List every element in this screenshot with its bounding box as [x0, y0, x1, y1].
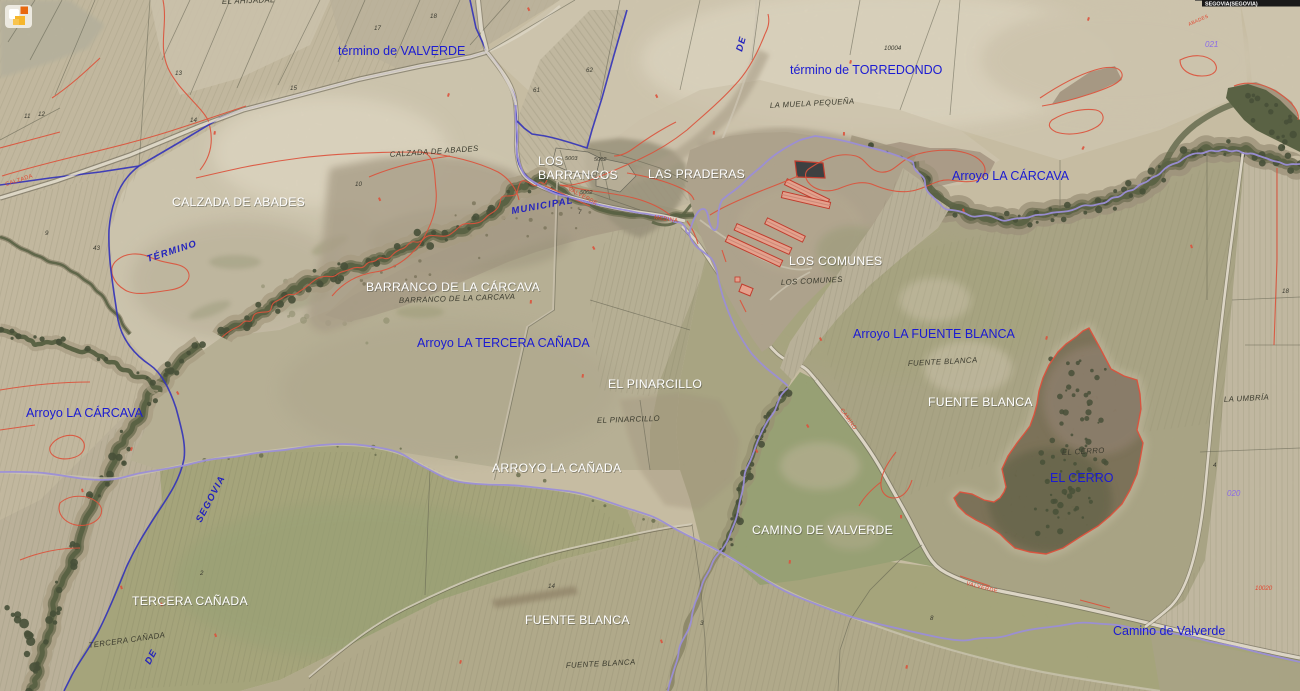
svg-text:62: 62 [586, 67, 593, 74]
svg-text:CAMINO DE VALVERDE: CAMINO DE VALVERDE [752, 523, 893, 537]
svg-text:10: 10 [355, 181, 362, 188]
svg-text:14: 14 [190, 117, 197, 124]
svg-text:15: 15 [290, 85, 297, 92]
svg-text:10004: 10004 [884, 45, 902, 52]
svg-text:43: 43 [93, 245, 100, 252]
svg-text:3: 3 [700, 620, 704, 627]
svg-text:13: 13 [175, 70, 182, 77]
svg-text:10020: 10020 [1255, 585, 1273, 592]
svg-text:EL PINARCILLO: EL PINARCILLO [608, 377, 702, 391]
svg-text:17: 17 [374, 25, 381, 32]
svg-text:Arroyo LA FUENTE BLANCA: Arroyo LA FUENTE BLANCA [853, 327, 1016, 341]
svg-text:9: 9 [45, 230, 49, 237]
svg-text:FUENTE BLANCA: FUENTE BLANCA [525, 613, 630, 627]
svg-text:020: 020 [1227, 489, 1241, 498]
svg-text:5003: 5003 [565, 156, 578, 162]
svg-text:Camino de Valverde: Camino de Valverde [1113, 624, 1225, 638]
svg-text:LOS: LOS [538, 154, 563, 168]
svg-text:BARRANCOS: BARRANCOS [538, 168, 618, 182]
svg-text:TERCERA CAÑADA: TERCERA CAÑADA [132, 594, 249, 608]
svg-text:7: 7 [578, 209, 582, 216]
svg-text:18: 18 [1282, 288, 1289, 295]
svg-text:021: 021 [1205, 40, 1218, 49]
svg-text:SEGOVIA(SEGOVIA): SEGOVIA(SEGOVIA) [1205, 1, 1258, 7]
svg-text:61: 61 [533, 87, 540, 94]
svg-text:14: 14 [548, 583, 555, 590]
svg-text:ARROYO LA CAÑADA: ARROYO LA CAÑADA [492, 461, 622, 475]
svg-text:Arroyo LA TERCERA CAÑADA: Arroyo LA TERCERA CAÑADA [417, 336, 590, 350]
svg-text:Arroyo LA CÁRCAVA: Arroyo LA CÁRCAVA [952, 168, 1070, 183]
svg-text:EL CERRO: EL CERRO [1050, 471, 1114, 485]
svg-text:término de TORREDONDO: término de TORREDONDO [790, 63, 943, 77]
svg-text:LAS PRADERAS: LAS PRADERAS [648, 167, 745, 181]
svg-text:CALZADA DE ABADES: CALZADA DE ABADES [172, 195, 305, 209]
svg-text:4: 4 [1213, 462, 1217, 469]
svg-text:FUENTE BLANCA: FUENTE BLANCA [928, 395, 1033, 409]
svg-text:2: 2 [199, 570, 204, 577]
svg-text:12: 12 [38, 111, 45, 118]
svg-text:5002: 5002 [594, 157, 607, 163]
svg-text:11: 11 [24, 113, 30, 120]
svg-text:5002: 5002 [580, 190, 593, 196]
svg-text:LOS COMUNES: LOS COMUNES [789, 254, 882, 268]
svg-text:2: 2 [759, 435, 764, 442]
svg-text:término de VALVERDE: término de VALVERDE [338, 44, 465, 58]
svg-text:Arroyo LA CÁRCAVA: Arroyo LA CÁRCAVA [26, 405, 144, 420]
svg-text:18: 18 [430, 13, 437, 20]
svg-text:8: 8 [930, 615, 934, 622]
